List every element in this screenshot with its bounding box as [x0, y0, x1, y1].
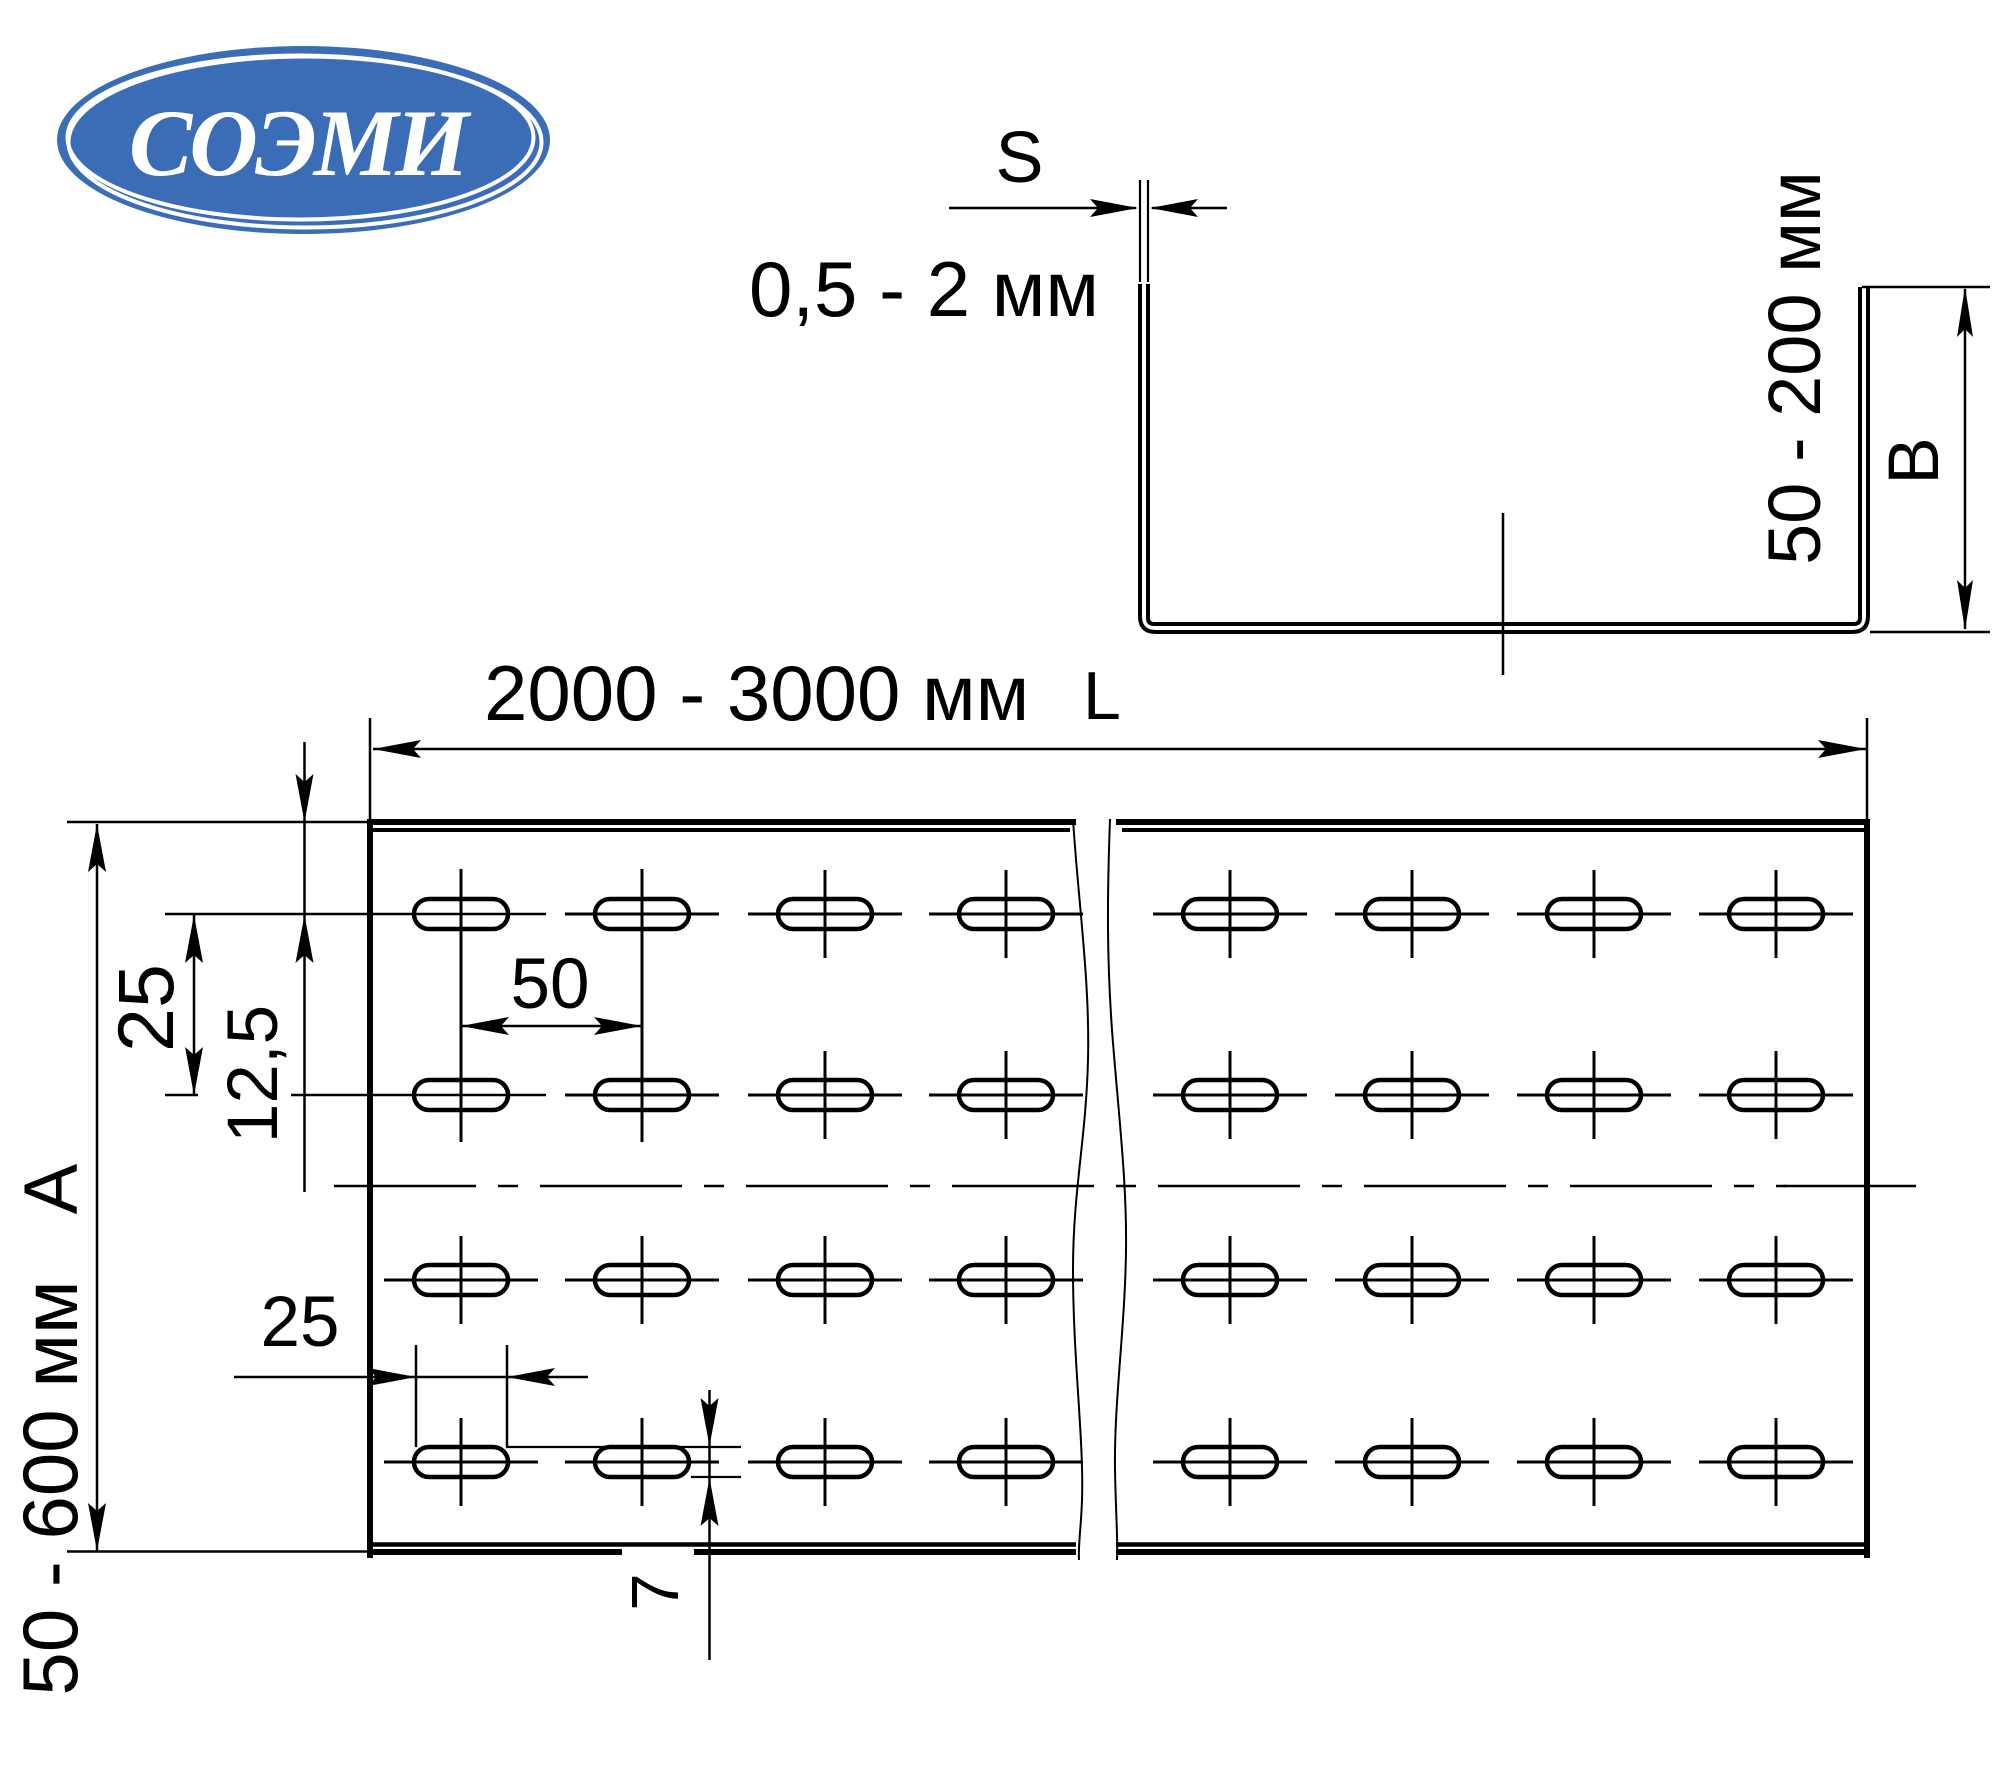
svg-text:В: В — [1875, 437, 1954, 484]
svg-text:12,5: 12,5 — [214, 1005, 293, 1143]
svg-text:А: А — [9, 1163, 94, 1214]
svg-text:2000 - 3000 мм: 2000 - 3000 мм — [484, 649, 1029, 737]
svg-text:L: L — [1083, 658, 1121, 734]
svg-text:7: 7 — [618, 1573, 693, 1610]
svg-text:50 - 600 мм: 50 - 600 мм — [6, 1280, 94, 1695]
svg-text:25: 25 — [261, 1283, 340, 1362]
svg-text:50: 50 — [511, 945, 590, 1024]
svg-text:СОЭМИ: СОЭМИ — [129, 90, 472, 196]
svg-text:0,5 - 2 мм: 0,5 - 2 мм — [749, 245, 1099, 333]
svg-text:25: 25 — [101, 964, 190, 1052]
svg-text:50 - 200 мм: 50 - 200 мм — [1753, 171, 1836, 565]
svg-text:S: S — [995, 118, 1043, 198]
